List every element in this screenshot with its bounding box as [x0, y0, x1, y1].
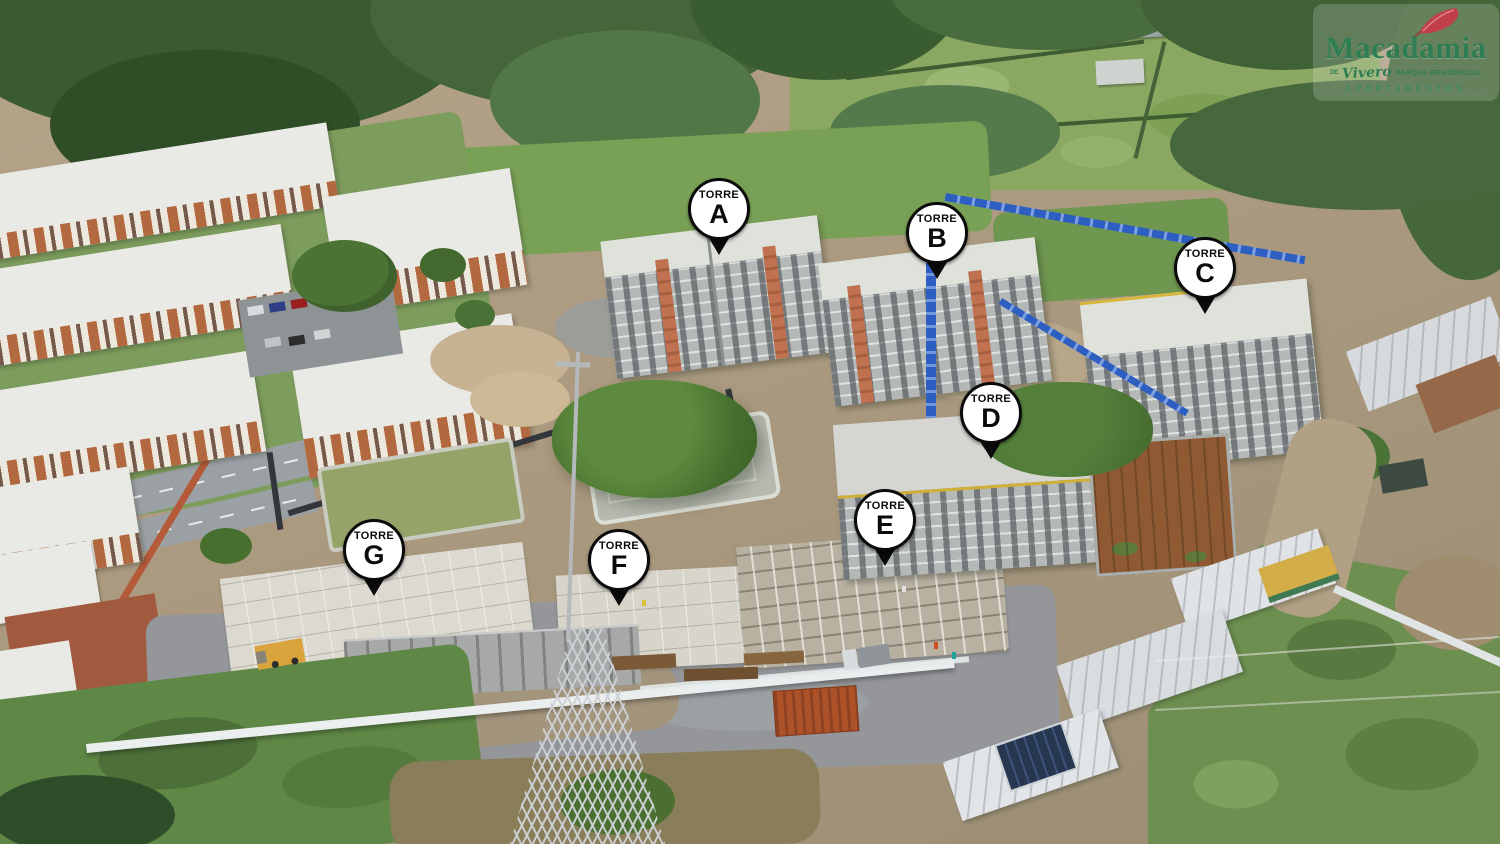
pin-head: TORRED [960, 382, 1022, 444]
pin-letter: E [876, 513, 894, 539]
logo-subtitle-row: DE Vivero PARQUE RESIDENCIAL [1315, 65, 1497, 81]
pin-head: TORREF [588, 529, 650, 591]
pin-letter: C [1195, 261, 1215, 287]
logo-prefix: DE [1330, 70, 1338, 76]
map-pin-torre-e: TORREE [846, 489, 924, 566]
pin-letter: B [927, 226, 947, 252]
map-pin-torre-d: TORRED [952, 382, 1030, 459]
map-pin-torre-f: TORREF [580, 529, 658, 606]
pin-head: TORREC [1174, 237, 1236, 299]
pin-letter: A [709, 202, 729, 228]
pin-head: TORREA [688, 178, 750, 240]
pin-head: TORREE [854, 489, 916, 551]
pin-letter: D [981, 406, 1001, 432]
map-pin-torre-a: TORREA [680, 178, 758, 255]
pin-head: TORREG [343, 519, 405, 581]
pin-letter: G [363, 543, 384, 569]
logo-macadamia: Macadamia DE Vivero PARQUE RESIDENCIAL A… [1313, 4, 1499, 101]
map-pin-torre-b: TORREB [898, 202, 976, 279]
logo-script-text: Vivero [1342, 64, 1392, 83]
logo-category: APARTAMENTOS [1315, 84, 1497, 93]
logo-brand-text: Macadamia [1315, 32, 1497, 63]
pin-head: TORREB [906, 202, 968, 264]
aerial-photo: TORREATORREBTORRECTORREDTORREETORREFTORR… [0, 0, 1500, 844]
logo-descriptor: PARQUE RESIDENCIAL [1396, 70, 1482, 77]
map-pin-torre-g: TORREG [335, 519, 413, 596]
pin-letter: F [611, 553, 628, 579]
map-pin-torre-c: TORREC [1166, 237, 1244, 314]
markers-layer: TORREATORREBTORRECTORREDTORREETORREFTORR… [0, 0, 1500, 844]
